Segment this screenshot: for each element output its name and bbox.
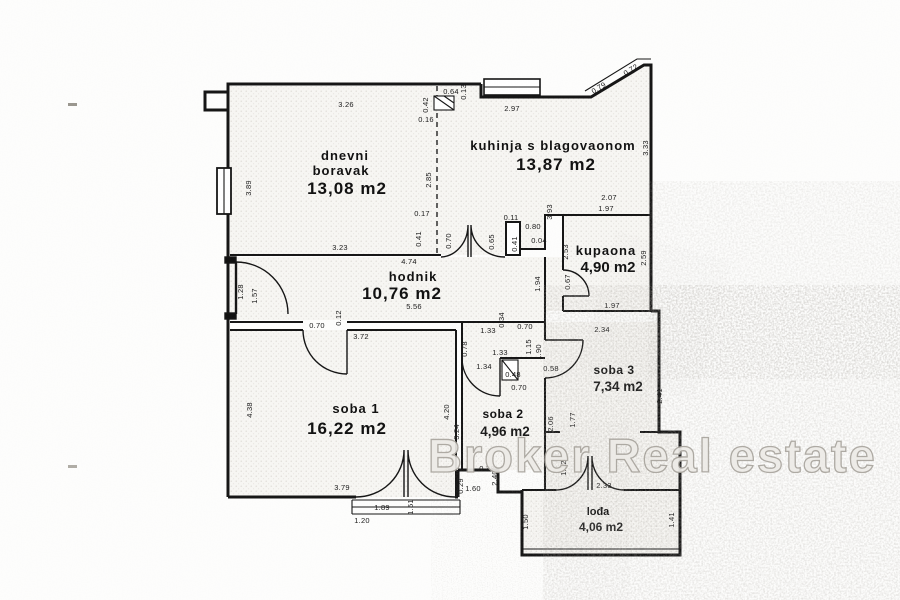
floor-plan-page: dnevni boravak 13,08 m2 kuhinja s blagov… [0, 0, 900, 600]
floor-plan-drawing: dnevni boravak 13,08 m2 kuhinja s blagov… [0, 0, 900, 600]
watermark-text: Broker Real estate [428, 429, 877, 482]
scan-mark [68, 465, 77, 468]
scan-mark [68, 103, 77, 106]
scan-noise [0, 0, 900, 600]
